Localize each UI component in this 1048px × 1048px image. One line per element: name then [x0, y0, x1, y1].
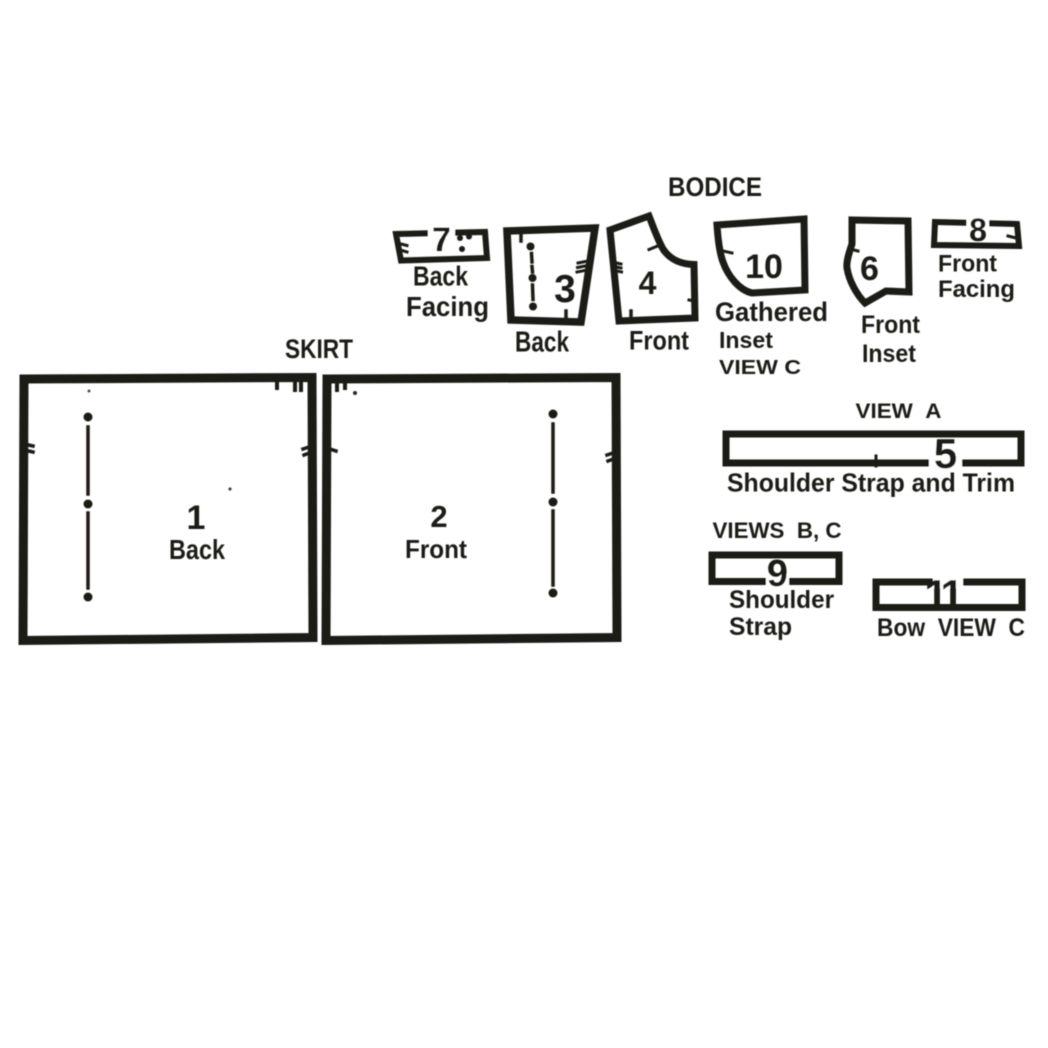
svg-text:Gathered: Gathered	[715, 297, 828, 327]
svg-text:Facing: Facing	[406, 291, 489, 322]
svg-text:Strap: Strap	[729, 613, 792, 641]
svg-text:7: 7	[432, 221, 451, 259]
svg-text:VIEW C: VIEW C	[719, 357, 801, 379]
svg-text:1: 1	[187, 499, 206, 537]
svg-text:VIEWS B, C: VIEWS B, C	[713, 518, 842, 543]
svg-text:Shoulder Strap and Trim: Shoulder Strap and Trim	[727, 468, 1015, 498]
svg-text:Shoulder: Shoulder	[729, 586, 834, 614]
svg-text:Front: Front	[938, 251, 997, 278]
svg-text:10: 10	[745, 248, 783, 286]
svg-text:Back: Back	[413, 261, 468, 292]
svg-text:Back: Back	[515, 327, 570, 359]
svg-text:4: 4	[639, 265, 657, 301]
svg-text:Bow VIEW C: Bow VIEW C	[877, 614, 1025, 642]
svg-text:VIEW A: VIEW A	[856, 400, 942, 423]
svg-text:Front: Front	[861, 311, 921, 339]
svg-text:Inset: Inset	[719, 327, 773, 353]
svg-text:6: 6	[860, 250, 879, 288]
svg-text:SKIRT: SKIRT	[285, 334, 353, 364]
svg-text:1: 1	[940, 571, 963, 618]
svg-text:8: 8	[969, 212, 987, 248]
svg-text:Facing: Facing	[938, 276, 1015, 303]
svg-text:BODICE: BODICE	[668, 172, 762, 202]
svg-text:Inset: Inset	[862, 340, 917, 368]
svg-text:2: 2	[430, 499, 447, 534]
svg-text:3: 3	[554, 268, 576, 311]
svg-text:Front: Front	[629, 326, 689, 356]
svg-text:Front: Front	[405, 534, 467, 564]
svg-text:Back: Back	[169, 534, 225, 565]
